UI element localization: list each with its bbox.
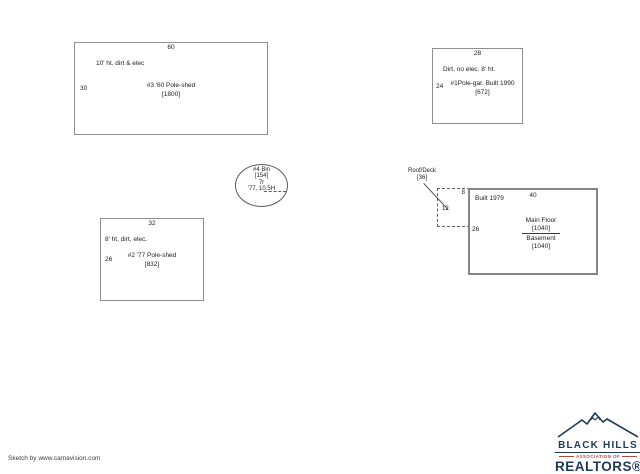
- building-note: 10' ht. dirt & elec: [96, 60, 144, 68]
- basement-area: [1040]: [496, 243, 586, 251]
- building-outline-house-1979: 40 Built 1979 26 Main Floor [1040] Basem…: [468, 188, 598, 275]
- building-outline-pole-shed-1977: 32 26 8' ht, dirt, elec. #2 '77 Pole-she…: [100, 218, 204, 301]
- building-name: #3 '60 Pole-shed: [75, 82, 267, 91]
- dimension-left: 12: [442, 206, 449, 213]
- building-outline-pole-garage-1990: 28 24 Dirt, no elec. 8' ht. #1Pole-gar. …: [432, 48, 523, 124]
- roof-deck-name: Roof/Deck: [402, 168, 442, 175]
- bin-label: #4 Bin [154] 7r '77, 10.5H: [236, 167, 287, 192]
- logo-line-realtors: REALTORS®: [555, 459, 640, 474]
- building-name: #1Pole-gar. Built 1990: [445, 80, 520, 89]
- fraction-divider: [522, 233, 560, 234]
- mountain-icon: [557, 411, 639, 438]
- roof-deck-label: Roof/Deck [36]: [402, 168, 442, 182]
- assoc-rule-right: [622, 456, 637, 457]
- property-sketch-canvas: 60 30 10' ht. dirt & elec #3 '60 Pole-sh…: [0, 0, 640, 474]
- roof-deck-area: [36]: [402, 175, 442, 182]
- building-area: [832]: [101, 261, 203, 270]
- roof-deck-outline: 8 12: [437, 188, 470, 227]
- dimension-top: 32: [101, 220, 203, 228]
- floor-area-block: Main Floor [1040] Basement [1040]: [496, 217, 586, 251]
- building-label: #2 '77 Pole-shed [832]: [101, 252, 203, 270]
- building-note: Built 1979: [475, 195, 504, 203]
- building-area: [672]: [445, 89, 520, 98]
- logo-line-black-hills: BLACK HILLS: [555, 440, 640, 453]
- dimension-left: 26: [472, 226, 479, 234]
- building-name: #2 '77 Pole-shed: [101, 252, 203, 261]
- main-floor-label: Main Floor: [496, 217, 586, 225]
- building-label: #3 '60 Pole-shed [1800]: [75, 82, 267, 100]
- dimension-top: 8: [462, 190, 465, 197]
- bin-outline: #4 Bin [154] 7r '77, 10.5H: [235, 164, 288, 207]
- sketch-credit: Sketch by www.camavision.com: [8, 455, 100, 462]
- building-area: [1800]: [75, 91, 267, 100]
- main-floor-area: [1040]: [496, 225, 586, 233]
- building-outline-pole-shed-1960: 60 30 10' ht. dirt & elec #3 '60 Pole-sh…: [74, 42, 268, 135]
- building-note: 8' ht, dirt, elec.: [105, 236, 147, 244]
- black-hills-realtors-logo: BLACK HILLS ASSOCIATION OF REALTORS®: [555, 411, 640, 474]
- basement-label: Basement: [496, 235, 586, 243]
- bin-radius-line: [264, 191, 286, 192]
- dimension-left: 24: [436, 83, 443, 91]
- building-note: Dirt, no elec. 8' ht.: [443, 66, 495, 74]
- dimension-top: 60: [75, 44, 267, 52]
- dimension-top: 28: [433, 50, 522, 58]
- assoc-rule-left: [559, 456, 574, 457]
- building-label: #1Pole-gar. Built 1990 [672]: [445, 80, 520, 98]
